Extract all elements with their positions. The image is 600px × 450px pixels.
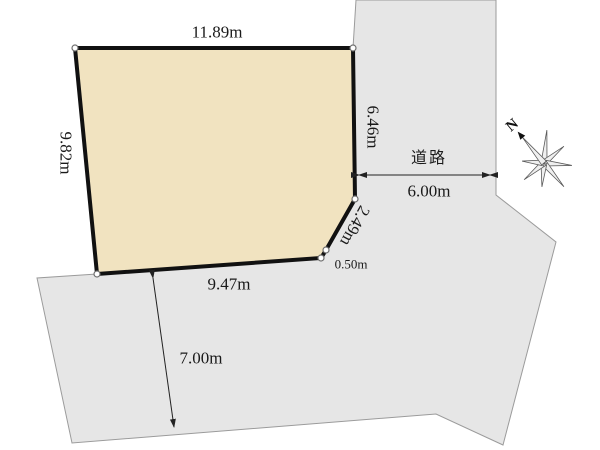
vertex-dot (318, 255, 324, 261)
plot-drawing: N (0, 0, 600, 450)
east-road-name-label: 道路 (411, 151, 447, 167)
dimension-label-right: 6.46m (365, 106, 382, 149)
dimension-label-left: 9.82m (58, 132, 75, 175)
vertex-dot (352, 196, 358, 202)
vertex-dot (323, 247, 329, 253)
compass-rose: N (487, 103, 583, 204)
vertex-dot (350, 45, 356, 51)
east-road-width-label: 6.00m (408, 183, 451, 200)
dimension-label-corner-cut: 0.50m (335, 258, 368, 271)
vertex-dot (94, 271, 100, 277)
vertex-dot (72, 45, 78, 51)
land-plot-diagram: N 11.89m 9.82m 6.46m 2.49m 0.50m 9.47m 道… (0, 0, 600, 450)
north-label: N (503, 116, 522, 135)
south-road-width-label: 7.00m (180, 350, 223, 367)
dimension-label-top: 11.89m (192, 24, 243, 41)
dimension-label-bottom: 9.47m (208, 276, 251, 293)
parcel-polygon (75, 48, 355, 274)
